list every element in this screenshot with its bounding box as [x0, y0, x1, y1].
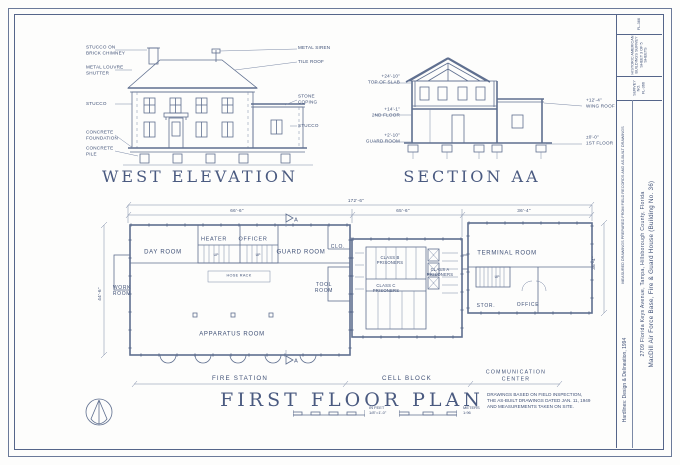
titleblock-rule-3: [616, 100, 662, 101]
room-apparatus-room: APPARATUS ROOM: [199, 331, 265, 339]
section-label-2nd-floor: +14'-1" 2ND FLOOR: [358, 106, 400, 117]
room-work-room: WORK ROOM: [113, 285, 131, 298]
west-elevation-title: WEST ELEVATION: [102, 167, 298, 187]
dim-left-side: 44'-6": [97, 287, 103, 301]
field-notes: DRAWINGS BASED ON FIELD INSPECTION, THE …: [487, 392, 607, 410]
zone-cell-block: CELL BLOCK: [382, 375, 432, 383]
titleblock-project-title: MacDill Air Force Base, Fire & Guard Hou…: [648, 109, 656, 439]
north-arrow-icon: [83, 396, 115, 428]
west-label-stucco: STUCCO: [86, 101, 107, 107]
west-label-foundation: CONCRETE FOUNDATION: [86, 129, 118, 140]
dim-overall: 172'-6": [348, 198, 364, 204]
room-hose-rack: HOSE RACK: [226, 274, 251, 279]
stair-up-label: UP: [214, 253, 219, 257]
room-tool-room: TOOL ROOM: [315, 282, 333, 295]
titleblock-survey-number: SURVEY NO. FL-366: [632, 77, 645, 99]
room-day-room: DAY ROOM: [144, 249, 182, 257]
west-label-chimney: STUCCO ON BRICK CHIMNEY: [86, 44, 125, 55]
west-label-tile-roof: TILE ROOF: [298, 59, 324, 65]
section-aa-title: SECTION AA: [403, 167, 540, 187]
drawing-sheet: STUCCO ON BRICK CHIMNEY METAL LOUVRE SHU…: [0, 0, 680, 465]
room-closet: CLO.: [331, 244, 345, 250]
titleblock-project-address: 2709 Florida Keys Avenue, Tampa, Hillsbo…: [640, 109, 647, 439]
titleblock-credit-line: MEASURED DRAWINGS PREPARED FROM FIELD RE…: [621, 105, 625, 305]
titleblock-tag: FL-366: [637, 15, 641, 33]
zone-fire-station: FIRE STATION: [212, 375, 268, 383]
scale-meters-label: METERS 1:96: [463, 406, 480, 416]
room-terminal-room: TERMINAL ROOM: [477, 250, 537, 258]
dim-cell-block: 65'-6": [396, 208, 410, 214]
west-label-shutter: METAL LOUVRE SHUTTER: [86, 64, 123, 75]
room-class-a-prisoners: CLASS A PRISONERS: [427, 267, 453, 278]
titleblock-firm: Hardlines: Design & Delineation, 1994: [622, 314, 628, 446]
west-label-coping: STONE COPING: [298, 93, 317, 104]
section-label-wing-roof: +12'-4" WING ROOF: [586, 97, 615, 108]
dim-fire-station: 66'-6": [230, 208, 244, 214]
stair-up-label: UP: [495, 275, 500, 279]
room-class-c-prisoners: CLASS C PRISONERS: [373, 283, 399, 294]
dim-comm-center: 36'-4": [517, 208, 531, 214]
titleblock-column-divider: [632, 100, 633, 448]
section-label-guard-room: +2'-10" GUARD ROOM: [358, 132, 400, 143]
room-class-b-prisoners: CLASS B PRISONERS: [377, 255, 403, 266]
section-label-1st-floor: ±0'-0" 1ST FLOOR: [586, 134, 613, 145]
titleblock-survey-name: HISTORIC AMERICAN BUILDINGS SURVEY SHEET…: [630, 35, 647, 75]
stair-up-label: UP: [256, 253, 261, 257]
west-label-siren: METAL SIREN: [298, 45, 330, 51]
section-cut-marker-top: A: [294, 218, 298, 225]
room-officer: OFFICER: [238, 237, 267, 244]
scale-feet-label: IN FEET 1/8"=1'-0": [369, 406, 386, 416]
room-office: OFFICE: [517, 302, 540, 308]
dim-right-side: 36'-4": [591, 256, 597, 270]
room-heater: HEATER: [201, 237, 227, 244]
scale-bar-meters: [399, 409, 457, 418]
room-guard-room: GUARD ROOM: [277, 249, 326, 257]
west-label-pile: CONCRETE PILE: [86, 145, 113, 156]
section-cut-marker-bottom: A: [294, 359, 298, 366]
room-storage: STOR.: [477, 303, 496, 309]
titleblock-divider: [616, 14, 617, 448]
scale-bar-feet: [293, 409, 365, 418]
zone-communication-center: COMMUNICATION CENTER: [486, 370, 546, 383]
west-label-stucco-right: STUCCO: [298, 123, 319, 129]
section-label-top-of-slab: +24'-10" TOP OF SLAB: [358, 73, 400, 84]
